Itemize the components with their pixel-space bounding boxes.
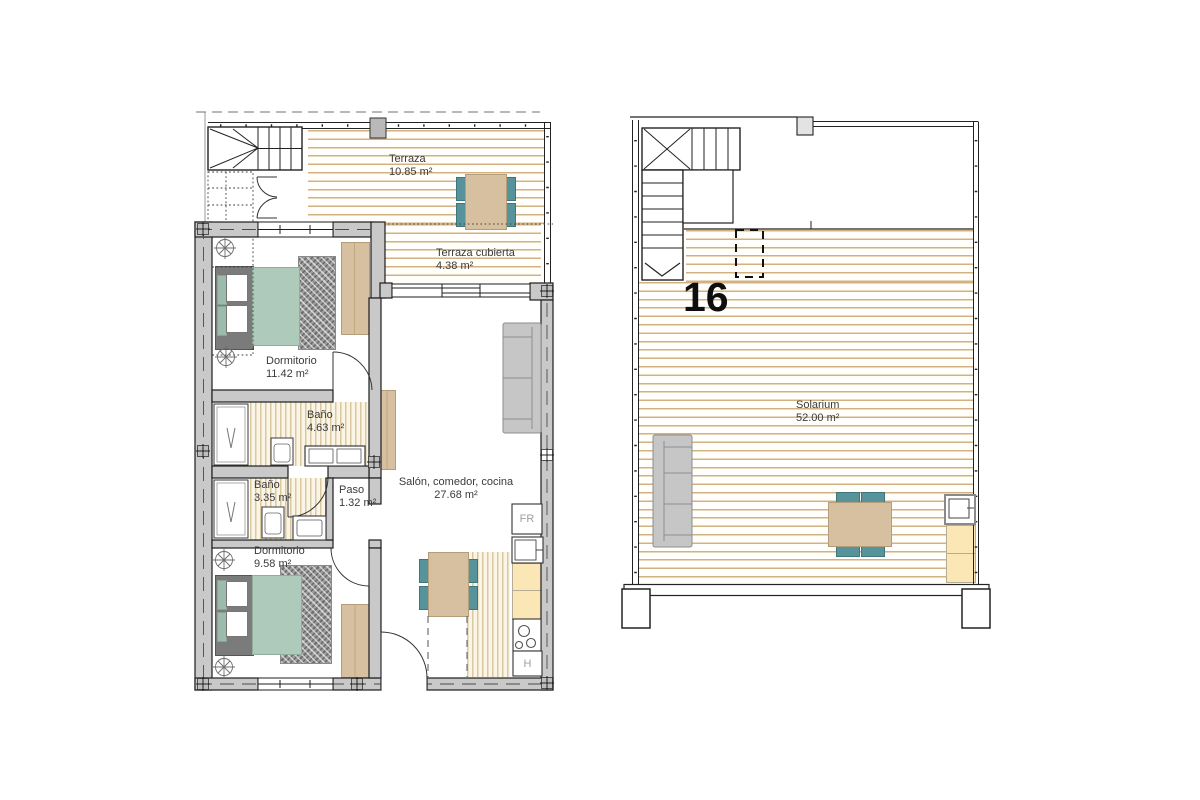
room-name: Salón, comedor, cocina — [395, 476, 517, 489]
bedroom1-wardrobe — [341, 242, 370, 335]
room-label-dormitorio1: Dormitorio 11.42 m² — [266, 355, 317, 382]
kitchen-counter — [512, 563, 544, 592]
room-label-bano1: Baño 4.63 m² — [307, 409, 344, 436]
kitchen-counter — [512, 590, 544, 620]
cross-marker-icon — [196, 222, 210, 236]
room-name: Dormitorio — [254, 545, 305, 558]
room-area: 52.00 m² — [796, 412, 839, 425]
shower-1 — [214, 404, 248, 465]
floorplan-canvas: Terraza 10.85 m² Terraza cubierta 4.38 m… — [0, 0, 1200, 800]
solarium-decking-main — [639, 282, 973, 585]
cross-marker-icon — [540, 448, 554, 462]
bedroom1-door — [333, 352, 372, 390]
unit-number: 16 — [683, 277, 729, 318]
room-area: 27.68 m² — [395, 489, 517, 502]
room-area: 10.85 m² — [389, 166, 432, 179]
stair-direction-arrow — [645, 263, 680, 276]
bedroom1-pillow — [226, 274, 248, 302]
solarium-decking-upper — [686, 230, 973, 282]
bedroom2-bed — [252, 575, 302, 655]
room-name: Terraza — [389, 153, 432, 166]
light-icon — [214, 237, 236, 259]
footing — [622, 589, 650, 628]
light-icon — [213, 656, 235, 678]
slab-and-footings — [622, 585, 990, 629]
stairwell-void — [683, 170, 733, 223]
room-area: 9.58 m² — [254, 558, 305, 571]
entry-door-opening — [381, 678, 427, 690]
room-area: 11.42 m² — [266, 368, 317, 381]
room-name: Baño — [254, 479, 291, 492]
shower-2 — [214, 480, 248, 538]
fridge-label: FR — [512, 504, 542, 534]
cross-marker-icon — [540, 284, 554, 298]
oven-label: H — [513, 651, 542, 676]
room-label-dormitorio2: Dormitorio 9.58 m² — [254, 545, 305, 572]
bedroom1-bed — [252, 267, 300, 346]
room-label-salon: Salón, comedor, cocina 27.68 m² — [395, 476, 517, 503]
bedroom2-pillow — [226, 581, 248, 607]
double-door — [257, 177, 277, 218]
room-area: 3.35 m² — [254, 492, 291, 505]
terrace-table — [465, 174, 507, 230]
floorplan-linework — [0, 0, 1200, 800]
bedroom2-pillow — [226, 611, 248, 637]
stairs-left-plan — [208, 127, 302, 170]
room-label-bano2: Baño 3.35 m² — [254, 479, 291, 506]
bedroom2-wardrobe — [341, 604, 371, 678]
sliding-door — [392, 284, 530, 297]
cross-marker-icon — [196, 444, 210, 458]
room-label-terraza: Terraza 10.85 m² — [389, 153, 432, 180]
entry-door — [381, 632, 427, 678]
room-area: 4.63 m² — [307, 422, 344, 435]
kitchen-sink — [512, 537, 543, 563]
kitchen-dashed-boundary — [428, 616, 467, 677]
room-name: Terraza cubierta — [436, 247, 515, 260]
living-sideboard — [379, 390, 396, 470]
room-label-solarium: Solarium 52.00 m² — [796, 399, 839, 426]
sofa-living — [503, 323, 541, 433]
room-name: Solarium — [796, 399, 839, 412]
cross-marker-icon — [540, 676, 554, 690]
footing — [962, 589, 990, 628]
room-name: Paso — [339, 484, 376, 497]
cross-marker-icon — [196, 677, 210, 691]
room-name: Baño — [307, 409, 344, 422]
light-icon — [213, 549, 235, 571]
bedroom1-rug — [298, 256, 336, 350]
solarium-cabinet — [946, 553, 976, 583]
room-label-terraza-cubierta: Terraza cubierta 4.38 m² — [436, 247, 515, 274]
bedroom1-pillow — [226, 305, 248, 333]
room-area: 1.32 m² — [339, 497, 376, 510]
room-label-paso: Paso 1.32 m² — [339, 484, 376, 511]
room-area: 4.38 m² — [436, 260, 515, 273]
bedroom2-door — [331, 548, 369, 586]
cross-marker-icon — [350, 677, 364, 691]
hob — [513, 619, 541, 651]
solarium-cabinet — [946, 525, 976, 555]
dining-table — [428, 552, 469, 617]
solarium-table — [828, 502, 892, 547]
room-name: Dormitorio — [266, 355, 317, 368]
